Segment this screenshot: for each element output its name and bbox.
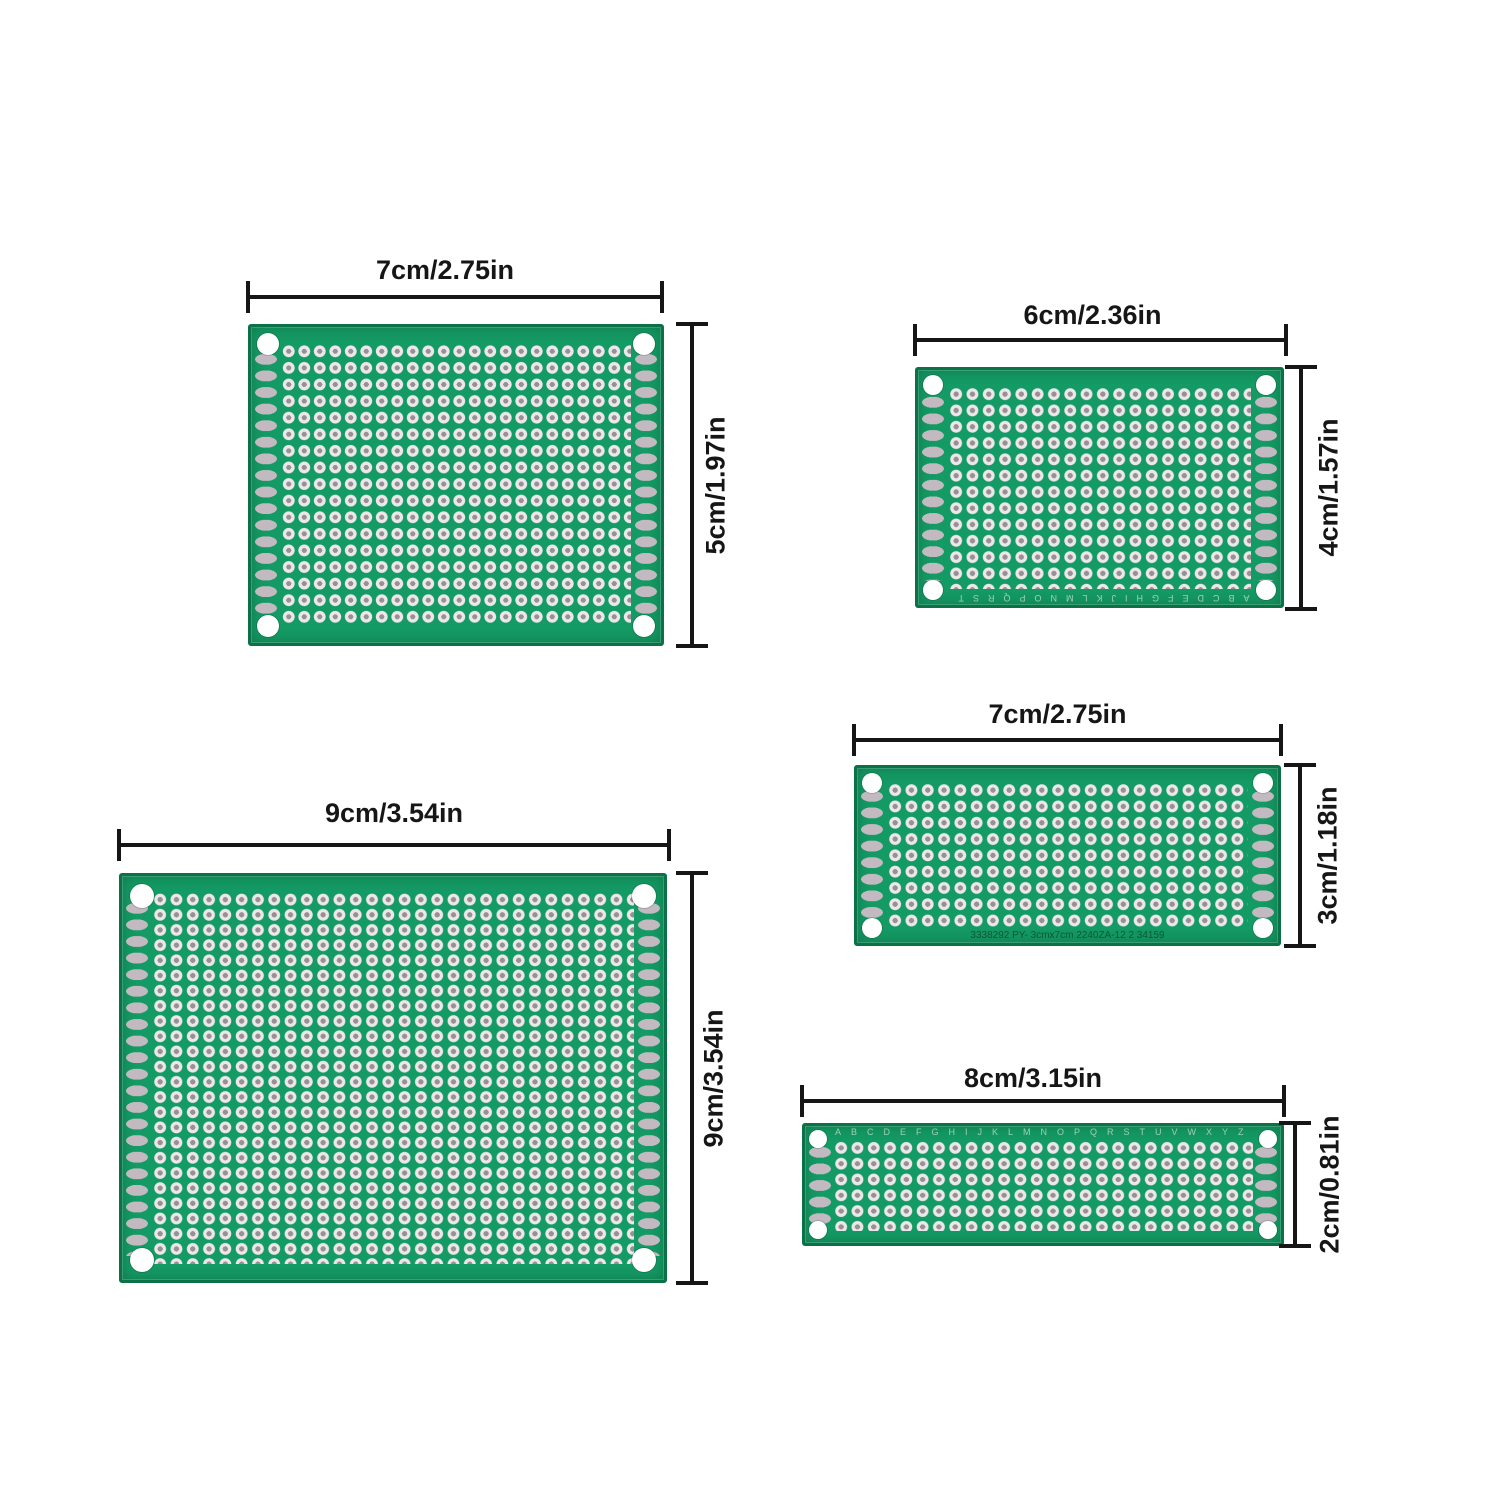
dim-label-width-6x4cm: 6cm/2.36in bbox=[905, 300, 1280, 330]
pcb-board-7x3cm: 3338292 PY- 3cmx7cm 2240ZA-12 2 34159 bbox=[854, 765, 1281, 946]
pcb-hole-grid bbox=[281, 343, 631, 627]
mounting-hole-top-left bbox=[862, 773, 882, 793]
mounting-hole-bottom-right bbox=[632, 1248, 656, 1272]
dim-line-width-9x9cm bbox=[117, 829, 671, 861]
dim-width-text-7x3cm: 7cm/2.75in bbox=[988, 699, 1126, 729]
mounting-hole-top-right bbox=[1253, 773, 1273, 793]
mounting-hole-bottom-right bbox=[1259, 1221, 1277, 1239]
dim-label-width-7x3cm: 7cm/2.75in bbox=[844, 699, 1271, 729]
mounting-hole-bottom-left bbox=[130, 1248, 154, 1272]
mounting-hole-top-right bbox=[1256, 375, 1276, 395]
pcb-hole-grid bbox=[887, 782, 1248, 927]
dim-label-width-8x2cm: 8cm/3.15in bbox=[792, 1063, 1274, 1093]
dim-label-height-9x9cm: 9cm/3.54in bbox=[692, 873, 736, 1283]
mounting-hole-bottom-left bbox=[862, 918, 882, 938]
mounting-hole-bottom-left bbox=[257, 615, 279, 637]
dim-label-width-7x5cm: 7cm/2.75in bbox=[236, 255, 654, 285]
mounting-hole-top-left bbox=[923, 375, 943, 395]
mounting-hole-top-left bbox=[809, 1130, 827, 1148]
dim-height-text-6x4cm: 4cm/1.57in bbox=[1314, 418, 1345, 556]
pcb-hole-grid bbox=[833, 1140, 1253, 1231]
silkscreen-column-letters: ABCDEFGHIJKLMNOPQRST bbox=[948, 592, 1251, 603]
dim-width-text-6x4cm: 6cm/2.36in bbox=[1023, 300, 1161, 330]
mounting-hole-top-right bbox=[633, 333, 655, 355]
pcb-bus-pads-right bbox=[634, 351, 658, 619]
pcb-board-6x4cm: ABCDEFGHIJKLMNOPQRST bbox=[915, 367, 1284, 608]
dim-width-text-8x2cm: 8cm/3.15in bbox=[964, 1063, 1102, 1093]
mounting-hole-top-right bbox=[632, 884, 656, 908]
pcb-board-8x2cm: ABCDEFGHIJKLMNOPQRSTUVWXYZ bbox=[802, 1123, 1284, 1246]
product-dimension-illustration: 7cm/2.75in 5cm/1.97in ABCDEFGHIJKLMNOPQR… bbox=[0, 0, 1500, 1500]
pcb-bus-pads-right bbox=[1254, 1144, 1278, 1225]
mounting-hole-bottom-right bbox=[1253, 918, 1273, 938]
pcb-bus-pads-right bbox=[1251, 788, 1275, 923]
dim-width-text-9x9cm: 9cm/3.54in bbox=[325, 798, 463, 828]
pcb-hole-grid bbox=[152, 892, 634, 1264]
silkscreen-part-number: 3338292 PY- 3cmx7cm 2240ZA-12 2 34159 bbox=[887, 930, 1248, 941]
dim-label-height-8x2cm: 2cm/0.81in bbox=[1308, 1123, 1352, 1246]
pcb-bus-pads-left bbox=[860, 788, 884, 923]
mounting-hole-top-right bbox=[1259, 1130, 1277, 1148]
pcb-hole-grid bbox=[948, 386, 1251, 589]
dim-width-text-7x5cm: 7cm/2.75in bbox=[376, 255, 514, 285]
mounting-hole-bottom-left bbox=[923, 580, 943, 600]
silkscreen-column-letters: ABCDEFGHIJKLMNOPQRSTUVWXYZ bbox=[835, 1127, 1251, 1138]
dim-line-width-7x5cm bbox=[246, 281, 664, 313]
mounting-hole-bottom-right bbox=[633, 615, 655, 637]
pcb-board-9x9cm bbox=[119, 873, 667, 1283]
dim-label-width-9x9cm: 9cm/3.54in bbox=[117, 798, 671, 828]
mounting-hole-bottom-right bbox=[1256, 580, 1276, 600]
pcb-bus-pads-left bbox=[125, 900, 149, 1256]
mounting-hole-bottom-left bbox=[809, 1221, 827, 1239]
dim-label-height-7x5cm: 5cm/1.97in bbox=[694, 324, 738, 646]
pcb-bus-pads-left bbox=[254, 351, 278, 619]
dim-height-text-8x2cm: 2cm/0.81in bbox=[1315, 1115, 1346, 1253]
dim-label-height-6x4cm: 4cm/1.57in bbox=[1307, 367, 1351, 608]
pcb-bus-pads-right bbox=[637, 900, 661, 1256]
pcb-board-7x5cm bbox=[248, 324, 664, 646]
dim-height-text-7x3cm: 3cm/1.18in bbox=[1313, 786, 1344, 924]
dim-line-height-8x2cm bbox=[1279, 1121, 1311, 1248]
dim-label-height-7x3cm: 3cm/1.18in bbox=[1306, 765, 1350, 946]
dim-height-text-9x9cm: 9cm/3.54in bbox=[699, 1009, 730, 1147]
dim-height-text-7x5cm: 5cm/1.97in bbox=[701, 416, 732, 554]
mounting-hole-top-left bbox=[130, 884, 154, 908]
pcb-bus-pads-left bbox=[808, 1144, 832, 1225]
mounting-hole-top-left bbox=[257, 333, 279, 355]
pcb-bus-pads-right bbox=[1254, 394, 1278, 581]
pcb-bus-pads-left bbox=[921, 394, 945, 581]
